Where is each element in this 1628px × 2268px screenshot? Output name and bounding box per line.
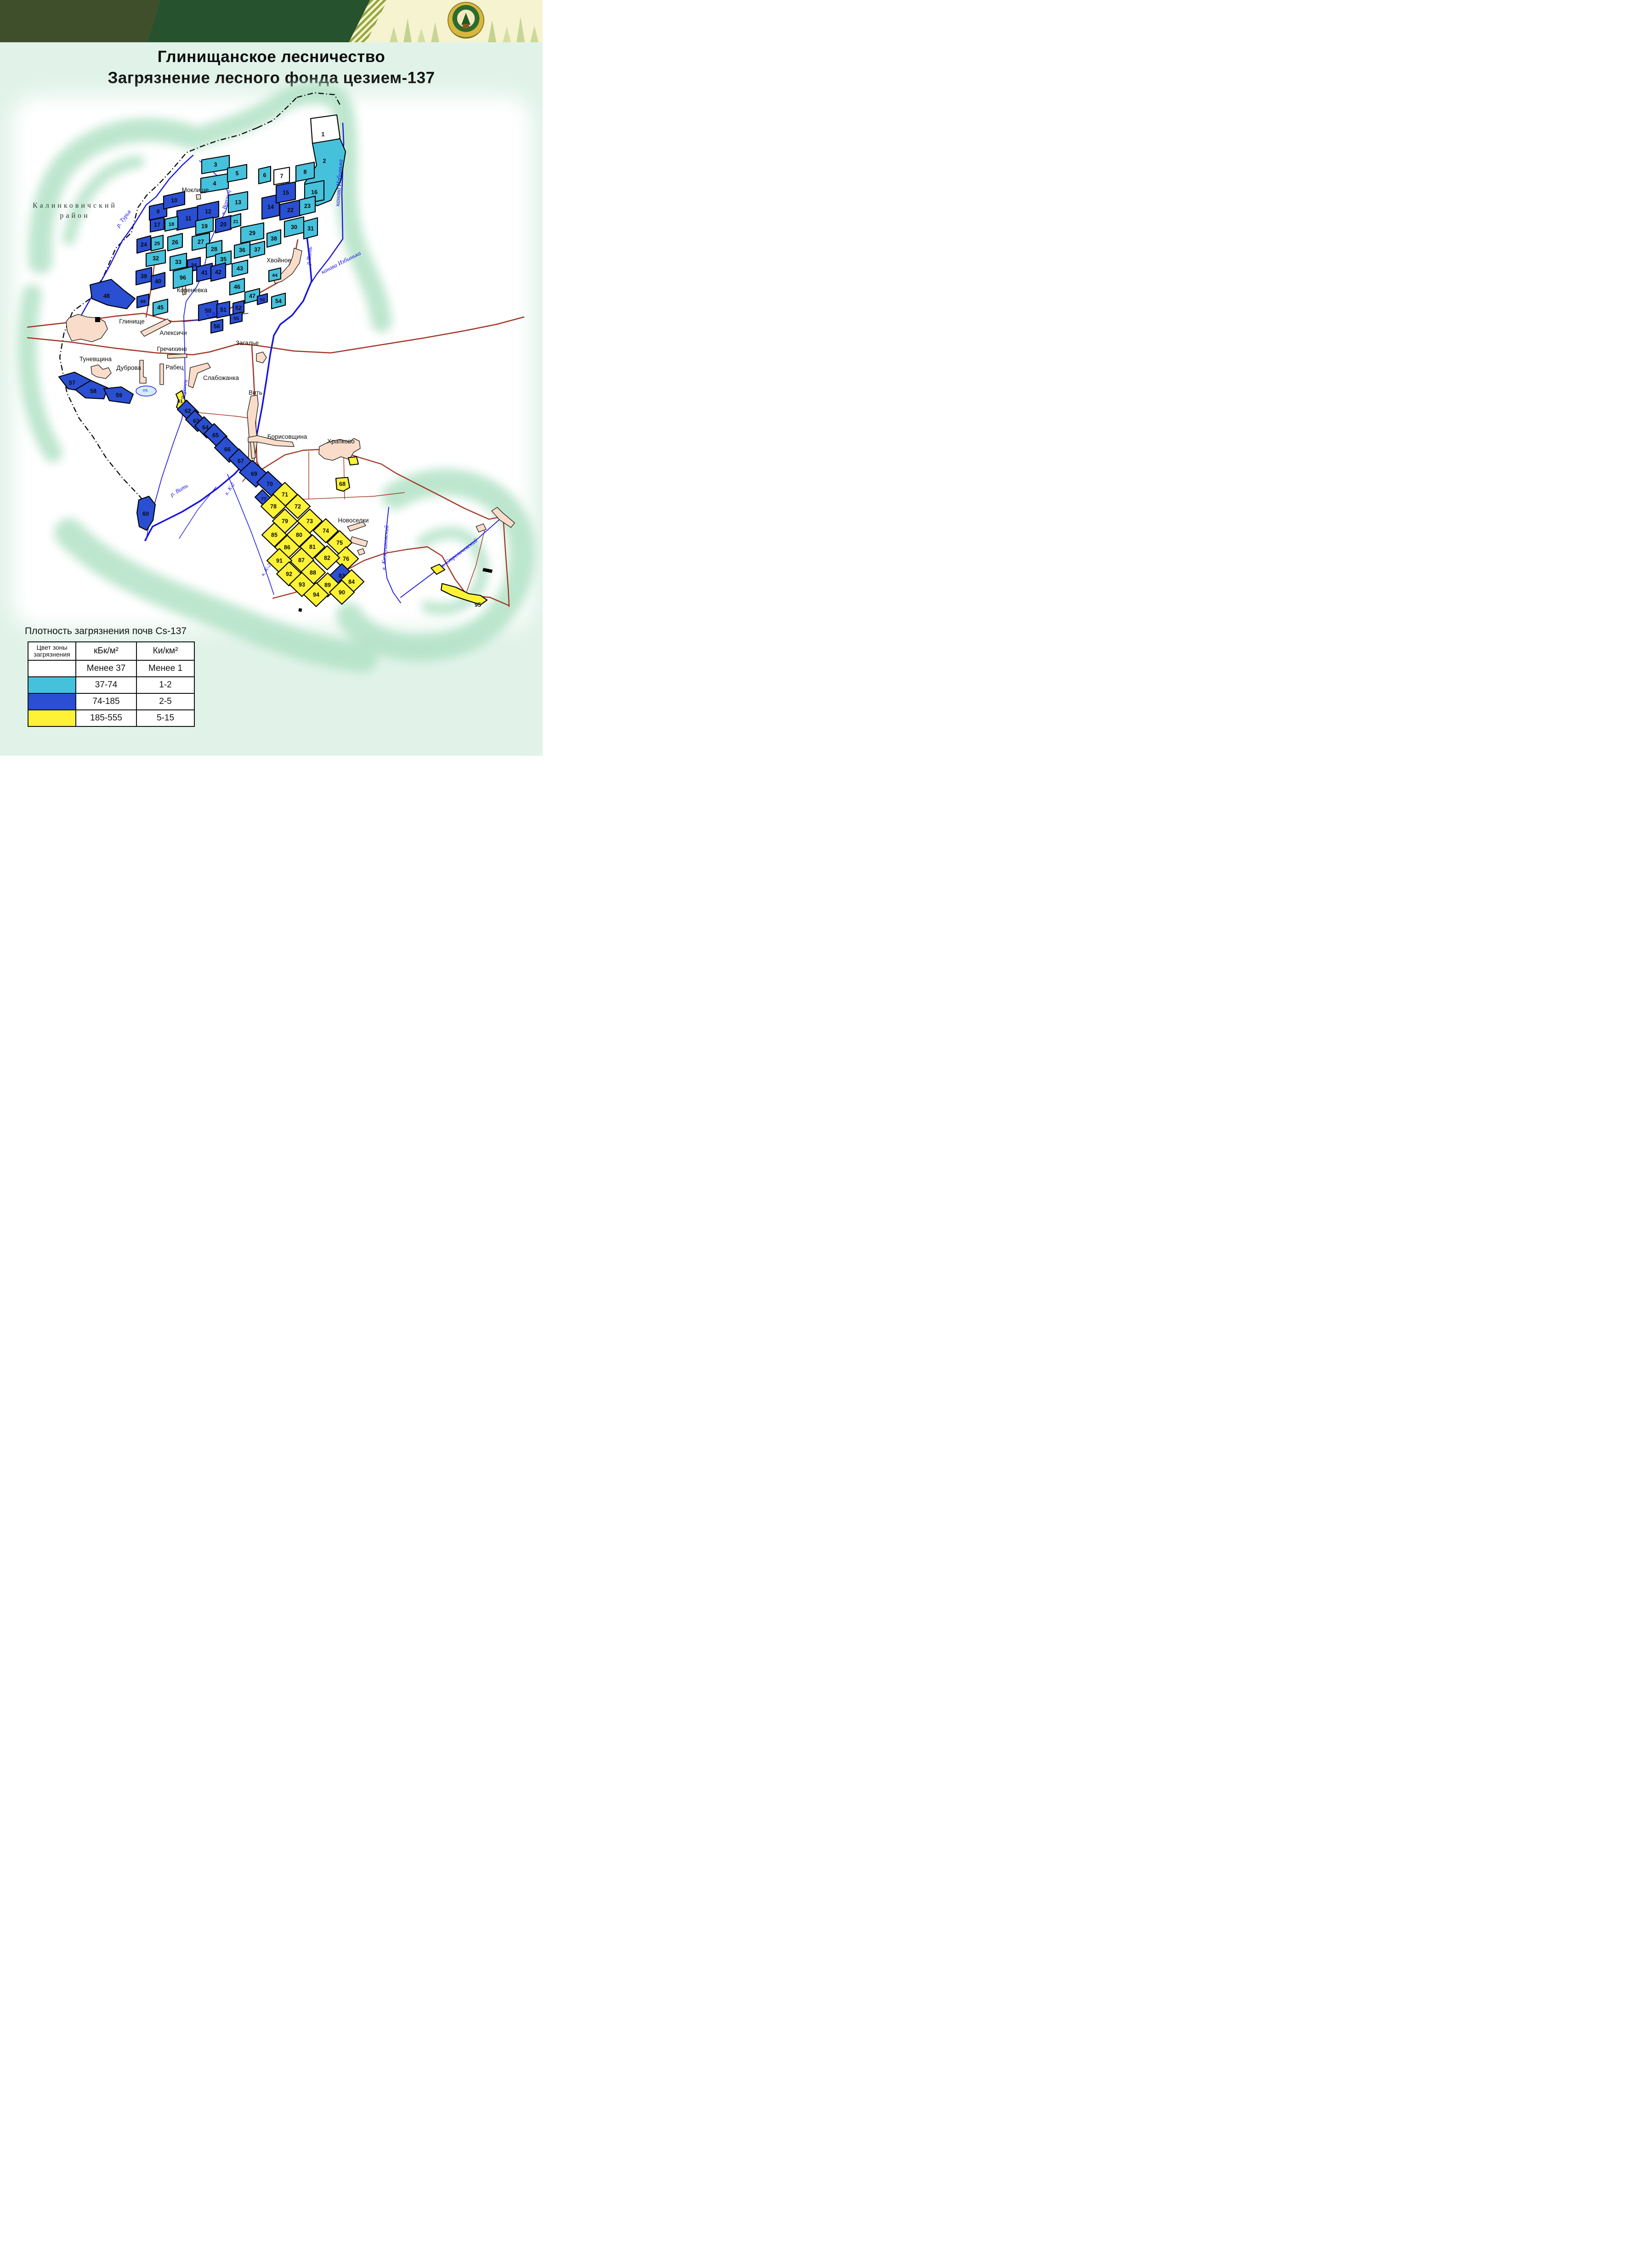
settlement-area (160, 364, 164, 385)
parcel-label-74: 74 (323, 528, 329, 534)
parcel-label-3: 3 (214, 162, 217, 168)
legend-row-74-185: 74-185 2-5 (28, 693, 194, 710)
parcel-label-37: 37 (254, 247, 261, 253)
legend-swatch-yellow (28, 710, 76, 726)
parcel-label-83: 83 (339, 573, 345, 579)
parcel-label-66: 66 (224, 447, 231, 453)
parcel-label-57: 57 (69, 380, 75, 386)
parcel-label-6: 6 (263, 172, 267, 179)
parcel-label-26: 26 (172, 239, 178, 246)
legend-header-ci: Ки/км² (136, 642, 194, 660)
water-label: р. Турья (114, 208, 132, 229)
place-label-Дуброва: Дуброва (116, 364, 141, 371)
legend-row-lt37: Менее 37 Менее 1 (28, 660, 194, 677)
parcel-48 (90, 279, 135, 309)
place-label-Вить: Вить (249, 389, 262, 396)
place-label-Борисовщина: Борисовщина (267, 433, 307, 440)
parcel-label-81: 81 (309, 544, 316, 550)
parcel-label-82: 82 (324, 555, 330, 561)
parcel-label-22: 22 (287, 207, 294, 214)
parcel-label-95: 95 (475, 602, 481, 608)
parcel-label-17: 17 (154, 222, 160, 228)
settlement-area (350, 537, 368, 547)
place-label-Моклище: Моклище (182, 187, 209, 193)
parcel-label-63: 63 (193, 418, 199, 425)
parcel-label-13: 13 (235, 199, 241, 206)
place-label-Загалье: Загалье (236, 340, 259, 346)
parcel-label-28: 28 (211, 246, 217, 253)
place-label-Гречихино: Гречихино (157, 346, 187, 352)
parcel-label-49: 49 (140, 299, 146, 305)
parcel-label-76: 76 (343, 556, 349, 562)
parcel-label-73: 73 (306, 518, 313, 525)
parcel-label-25: 25 (154, 241, 160, 247)
parcel-label-77: 77 (261, 497, 267, 502)
parcel-label-15: 15 (283, 190, 289, 196)
parcel-label-40: 40 (155, 278, 161, 285)
legend-swatch-white (28, 660, 76, 677)
parcel-label-55: 55 (233, 316, 239, 322)
place-label-Алексичи: Алексичи (159, 329, 187, 336)
parcel-label-41: 41 (201, 270, 208, 276)
place-label-Хвойное: Хвойное (267, 257, 291, 264)
parcel-label-88: 88 (310, 570, 316, 576)
parcel-label-90: 90 (339, 590, 345, 596)
parcel-label-46: 46 (234, 284, 240, 290)
parcel-label-79: 79 (282, 518, 288, 525)
water-label: р. Вить (169, 482, 189, 498)
parcel-label-67: 67 (238, 458, 244, 465)
legend-header-kbq: кБк/м² (76, 642, 136, 660)
parcel-label-92: 92 (286, 571, 292, 578)
parcel-label-72: 72 (295, 504, 301, 510)
parcel-label-10: 10 (171, 198, 177, 204)
parcel-label-39: 39 (141, 273, 147, 280)
parcel-label-48: 48 (103, 293, 110, 300)
legend-row-185-555: 185-555 5-15 (28, 710, 194, 726)
parcel-label-69: 69 (251, 471, 257, 477)
parcel-label-75: 75 (336, 540, 343, 546)
page: Глинищанское лесничество Загрязнение лес… (0, 0, 543, 756)
parcel-label-86: 86 (284, 544, 290, 551)
legend-title: Плотность загрязнения почв Cs-137 (25, 626, 199, 637)
forestry-office-symbol (95, 317, 100, 322)
legend: Плотность загрязнения почв Cs-137 Цвет з… (24, 626, 199, 727)
parcel-label-43: 43 (237, 266, 243, 272)
parcel-label-84: 84 (348, 579, 355, 585)
legend-swatch-blue (28, 693, 76, 710)
parcel-label-34: 34 (191, 263, 197, 268)
parcel-label-60: 60 (142, 511, 149, 517)
parcel-label-31: 31 (307, 226, 314, 232)
parcel-label-85: 85 (271, 532, 278, 539)
place-label-Слабожанка: Слабожанка (203, 374, 239, 381)
parcel-label-18: 18 (169, 222, 174, 227)
settlement-area (167, 354, 187, 358)
parcel-label-1: 1 (322, 131, 325, 138)
parcel-label-58: 58 (90, 388, 96, 395)
place-label-Храпково: Храпково (327, 438, 354, 445)
legend-header-color: Цвет зонызагрязнения (28, 642, 76, 660)
parcel-label-21: 21 (233, 220, 238, 225)
parcel-label-20: 20 (220, 221, 227, 228)
place-label-Рабец: Рабец (166, 364, 184, 371)
parcel-label-93: 93 (299, 582, 305, 588)
parcel-label-62: 62 (185, 408, 191, 414)
legend-row-37-74: 37-74 1-2 (28, 677, 194, 693)
parcel-label-16: 16 (311, 189, 318, 196)
parcel-label-9: 9 (157, 209, 160, 215)
parcel-label-91: 91 (276, 558, 283, 564)
parcel-label-27: 27 (198, 239, 204, 245)
parcel-label-4: 4 (213, 181, 216, 187)
parcel-fragment (348, 457, 358, 465)
parcel-label-70: 70 (267, 481, 273, 488)
parcel-label-44: 44 (272, 273, 278, 278)
parcel-label-80: 80 (296, 532, 302, 539)
parcel-label-56: 56 (214, 323, 220, 330)
parcel-label-2: 2 (323, 158, 326, 164)
parcel-label-52: 52 (235, 305, 242, 312)
parcel-label-45: 45 (157, 305, 164, 311)
settlement-area (140, 360, 146, 383)
parcel-label-65: 65 (212, 432, 219, 439)
parcel-label-64: 64 (202, 425, 209, 431)
parcel-label-42: 42 (215, 269, 221, 276)
district-label-line2: район (60, 212, 90, 220)
water-label: р.Вить (305, 246, 313, 266)
settlement-area (256, 352, 267, 363)
place-label-Туневщина: Туневщина (79, 356, 112, 363)
parcel-label-54: 54 (275, 298, 282, 305)
water-label: к. К-2 (223, 482, 236, 496)
parcel-label-94: 94 (313, 592, 319, 598)
parcel-label-59: 59 (116, 392, 122, 399)
parcel-label-19: 19 (201, 223, 208, 230)
settlement-area (91, 365, 111, 379)
parcel-label-78: 78 (270, 504, 277, 510)
parcel-label-35: 35 (220, 256, 227, 263)
legend-swatch-cyan (28, 677, 76, 693)
parcel-label-96: 96 (180, 275, 186, 281)
parcel-label-36: 36 (239, 247, 245, 254)
legend-table: Цвет зонызагрязнения кБк/м² Ки/км² Менее… (28, 641, 195, 727)
parcel-label-23: 23 (304, 203, 311, 210)
parcel-label-38: 38 (271, 236, 277, 242)
parcel-label-89: 89 (324, 582, 331, 589)
parcel-label-12: 12 (205, 209, 211, 215)
parcel-label-68: 68 (339, 481, 346, 488)
parcel-label-8: 8 (304, 169, 307, 176)
water-label: к. Кожушковский (380, 525, 390, 570)
place-label-Глинище: Глинище (119, 318, 144, 325)
map-symbol (298, 608, 302, 612)
parcel-label-32: 32 (153, 255, 159, 262)
parcel-label-87: 87 (298, 557, 305, 564)
place-label-Кореневка: Кореневка (177, 287, 208, 294)
parcel-label-11: 11 (185, 215, 191, 222)
parcel-label-51: 51 (220, 307, 227, 313)
parcel-label-33: 33 (175, 259, 182, 266)
parcel-label-5: 5 (236, 170, 239, 177)
parcel-label-29: 29 (249, 230, 255, 237)
water-label: оз. (143, 387, 148, 393)
parcel-label-24: 24 (141, 242, 147, 248)
parcel-label-30: 30 (291, 224, 297, 231)
settlement-area (357, 549, 365, 555)
parcel-label-14: 14 (267, 204, 274, 210)
parcel-label-71: 71 (282, 492, 288, 498)
parcel-label-47: 47 (249, 293, 255, 300)
district-label-line1: Калинковичский (33, 202, 117, 210)
place-label-Новоселки: Новоселки (338, 517, 369, 524)
parcel-label-7: 7 (280, 173, 284, 180)
settlement-area (196, 194, 201, 199)
parcel-label-53: 53 (260, 298, 265, 303)
